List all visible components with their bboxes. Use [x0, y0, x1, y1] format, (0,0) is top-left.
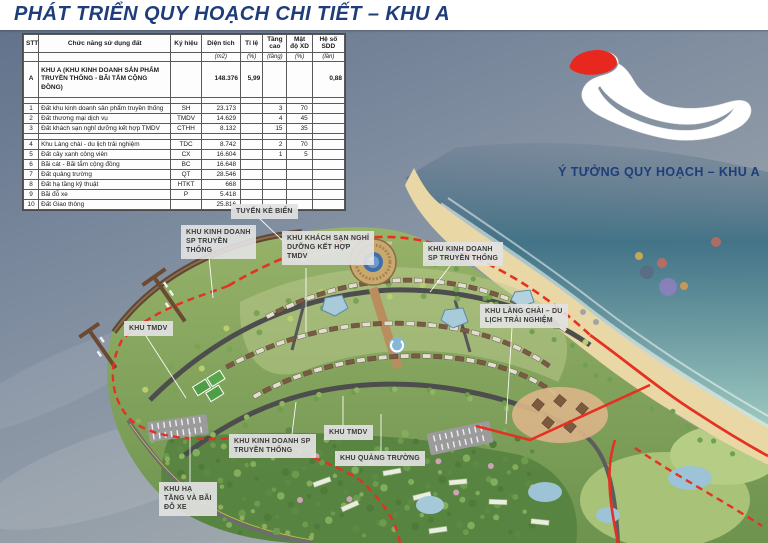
cell-floors — [263, 180, 287, 190]
cell-name: Đất hạ tầng kỹ thuật — [39, 180, 171, 190]
cell-area: 8.742 — [201, 140, 240, 150]
pond — [528, 482, 562, 502]
pond — [596, 507, 620, 523]
cell-ratio — [241, 104, 263, 114]
cell-density — [287, 61, 312, 97]
cell-stt: 6 — [24, 160, 39, 170]
unit-cell — [171, 52, 201, 61]
cell-code: TDC — [171, 140, 201, 150]
table-row: 9Bãi đỗ xeP5.418 — [24, 190, 345, 200]
unit-cell: (lần) — [312, 52, 344, 61]
cell-far — [312, 180, 344, 190]
cell-far: 0,88 — [312, 61, 344, 97]
cell-floors: 4 — [263, 114, 287, 124]
map-label-khu-tmdv-bottom: KHU TMDV — [324, 425, 373, 440]
title-bar: PHÁT TRIỂN QUY HOẠCH CHI TIẾT – KHU A — [0, 0, 768, 30]
cell-ratio — [241, 180, 263, 190]
table-row: 2Đất thương mại dịch vụTMDV14.629445 — [24, 114, 345, 124]
cell-area: 668 — [201, 180, 240, 190]
table-row: 5Đất cây xanh công viênCX16.60415 — [24, 150, 345, 160]
col-ky-hieu: Ký hiệu — [171, 35, 201, 53]
cell-far — [312, 190, 344, 200]
cell-far — [312, 150, 344, 160]
cell-far — [312, 160, 344, 170]
cell-far — [312, 114, 344, 124]
cell-name: Đất cây xanh công viên — [39, 150, 171, 160]
cell-name: Đất khách sạn nghỉ dưỡng kết hợp TMDV — [39, 124, 171, 134]
cell-area: 16.604 — [201, 150, 240, 160]
cell-stt: 3 — [24, 124, 39, 134]
cell-ratio: 5,99 — [241, 61, 263, 97]
col-stt: STT — [24, 35, 39, 53]
cell-far — [312, 124, 344, 134]
col-ti-le: Tỉ lệ — [241, 35, 263, 53]
unit-cell: (%) — [287, 52, 312, 61]
cell-code: SH — [171, 104, 201, 114]
pond — [416, 496, 444, 514]
map-label-khu-kinh-doanh-sp-truyen-thong-right: KHU KINH DOANH SP TRUYỀN THỐNG — [423, 242, 503, 266]
cell-code: CX — [171, 150, 201, 160]
unit-cell: (%) — [241, 52, 263, 61]
cell-floors: 2 — [263, 140, 287, 150]
map-label-khu-ha-tang-bai-do-xe: KHU HẠ TẦNG VÀ BÃI ĐỖ XE — [159, 482, 217, 516]
cell-density: 35 — [287, 124, 312, 134]
inset-caption: Ý TƯỞNG QUY HOẠCH – KHU A — [545, 165, 760, 179]
cell-far — [312, 104, 344, 114]
cell-area: 23.173 — [201, 104, 240, 114]
cell-floors: 1 — [263, 150, 287, 160]
cell-area: 16.648 — [201, 160, 240, 170]
cell-code: CTHH — [171, 124, 201, 134]
cell-name: Bãi đỗ xe — [39, 190, 171, 200]
cell-code — [171, 200, 201, 210]
cell-area: 14.629 — [201, 114, 240, 124]
map-label-khu-tmdv-left: KHU TMDV — [124, 321, 173, 336]
table-row: 8Đất hạ tầng kỹ thuậtHTKT668 — [24, 180, 345, 190]
unit-cell — [39, 52, 171, 61]
map-label-khu-kinh-doanh-sp-truyen-thong-bottom: KHU KINH DOANH SP TRUYỀN THỐNG — [229, 434, 316, 458]
fishing-village — [512, 387, 608, 443]
cell-code — [171, 61, 201, 97]
cell-far — [312, 200, 344, 210]
map-label-khu-quang-truong: KHU QUẢNG TRƯỜNG — [335, 451, 425, 466]
unit-cell: (m2) — [201, 52, 240, 61]
cell-far — [312, 170, 344, 180]
map-label-khu-lang-chai: KHU LÀNG CHÀI – DU LỊCH TRẢI NGHIỆM — [480, 304, 568, 328]
table-row: 7Đất quảng trườngQT28.546 — [24, 170, 345, 180]
land-use-table-body: AKHU A (KHU KINH DOANH SẢN PHẨM TRUYỀN T… — [24, 61, 345, 209]
cell-name: Đất Giao thông — [39, 200, 171, 210]
cell-stt: 1 — [24, 104, 39, 114]
cell-code: HTKT — [171, 180, 201, 190]
cell-ratio — [241, 170, 263, 180]
table-header-row: STT Chức năng sử dụng đất Ký hiệu Diện t… — [24, 35, 345, 53]
cell-ratio — [241, 150, 263, 160]
cell-stt: 8 — [24, 180, 39, 190]
col-mat-do: Mật độ XD — [287, 35, 312, 53]
cell-code: QT — [171, 170, 201, 180]
cell-stt: 10 — [24, 200, 39, 210]
golf-pond — [668, 466, 712, 490]
cell-name: KHU A (KHU KINH DOANH SẢN PHẨM TRUYỀN TH… — [39, 61, 171, 97]
cell-floors — [263, 190, 287, 200]
cell-floors — [263, 61, 287, 97]
land-use-table: STT Chức năng sử dụng đất Ký hiệu Diện t… — [23, 34, 345, 210]
cell-ratio — [241, 124, 263, 134]
cell-density — [287, 170, 312, 180]
cell-area: 28.546 — [201, 170, 240, 180]
cell-code: P — [171, 190, 201, 200]
cell-ratio — [241, 114, 263, 124]
cell-ratio — [241, 140, 263, 150]
cell-stt: 2 — [24, 114, 39, 124]
map-label-khu-khach-san-nghi-duong: KHU KHÁCH SẠN NGHỈ DƯỠNG KẾT HỢP TMDV — [282, 231, 374, 265]
cell-density — [287, 190, 312, 200]
cell-density: 5 — [287, 150, 312, 160]
cell-stt: 7 — [24, 170, 39, 180]
cell-stt: 5 — [24, 150, 39, 160]
cell-density: 45 — [287, 114, 312, 124]
cell-name: Khu Làng chài - du lịch trải nghiệm — [39, 140, 171, 150]
col-dien-tich: Diện tích — [201, 35, 240, 53]
cell-floors — [263, 160, 287, 170]
table-row: 1Đất khu kinh doanh sản phẩm truyền thốn… — [24, 104, 345, 114]
cell-ratio — [241, 160, 263, 170]
cell-area: 148.376 — [201, 61, 240, 97]
table-summary-row: AKHU A (KHU KINH DOANH SẢN PHẨM TRUYỀN T… — [24, 61, 345, 97]
cell-name: Đất khu kinh doanh sản phẩm truyền thống — [39, 104, 171, 114]
cell-name: Đất thương mại dịch vụ — [39, 114, 171, 124]
land-use-table-panel: STT Chức năng sử dụng đất Ký hiệu Diện t… — [22, 33, 346, 211]
col-he-so: Hệ số SDD — [312, 35, 344, 53]
cell-density — [287, 160, 312, 170]
cell-area: 8.132 — [201, 124, 240, 134]
cell-code: BC — [171, 160, 201, 170]
table-row: 4Khu Làng chài - du lịch trải nghiệmTDC8… — [24, 140, 345, 150]
page-title: PHÁT TRIỂN QUY HOẠCH CHI TIẾT – KHU A — [14, 3, 450, 26]
cell-density — [287, 180, 312, 190]
unit-cell — [24, 52, 39, 61]
cell-density: 70 — [287, 140, 312, 150]
cell-far — [312, 140, 344, 150]
table-units-row: (m2) (%) (tầng) (%) (lần) — [24, 52, 345, 61]
map-label-khu-kinh-doanh-sp-truyen-thong-left: KHU KINH DOANH SP TRUYỀN THỐNG — [181, 225, 256, 259]
cell-floors: 3 — [263, 104, 287, 114]
cell-ratio — [241, 190, 263, 200]
cell-floors: 15 — [263, 124, 287, 134]
table-row: 6Bãi cát - Bãi tắm cộng đồngBC16.648 — [24, 160, 345, 170]
cell-density: 70 — [287, 104, 312, 114]
col-chuc-nang: Chức năng sử dụng đất — [39, 35, 171, 53]
cell-floors — [263, 170, 287, 180]
cell-stt: A — [24, 61, 39, 97]
cell-area: 5.418 — [201, 190, 240, 200]
map-label-tuyen-ke-bien: TUYẾN KÈ BIỂN — [231, 204, 298, 219]
cell-name: Đất quảng trường — [39, 170, 171, 180]
cell-code: TMDV — [171, 114, 201, 124]
table-row: 3Đất khách sạn nghỉ dưỡng kết hợp TMDVCT… — [24, 124, 345, 134]
unit-cell: (tầng) — [263, 52, 287, 61]
cell-name: Bãi cát - Bãi tắm cộng đồng — [39, 160, 171, 170]
cell-stt: 4 — [24, 140, 39, 150]
col-tang-cao: Tầng cao — [263, 35, 287, 53]
cell-stt: 9 — [24, 190, 39, 200]
